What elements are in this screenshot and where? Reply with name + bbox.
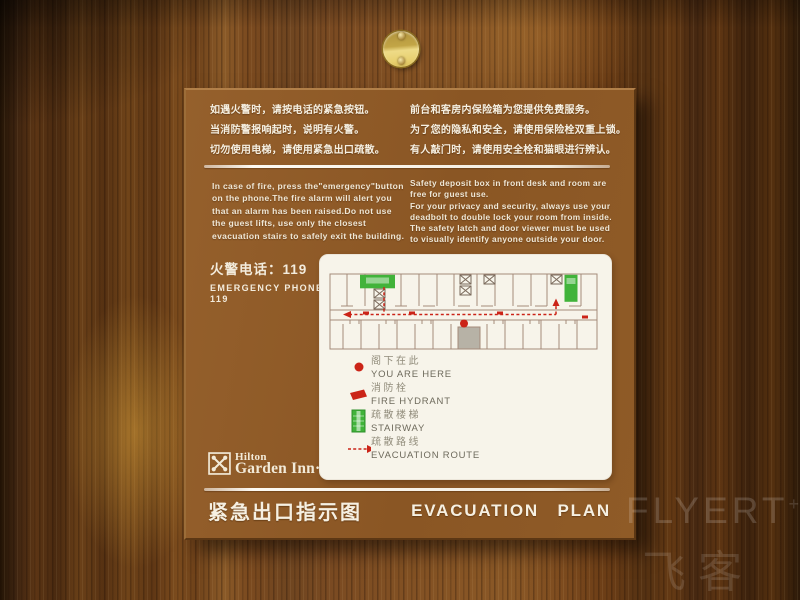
- notice-line: on the phone.The fire alarm will alert y…: [212, 192, 404, 204]
- notice-line: 前台和客房内保险箱为您提供免费服务。: [410, 101, 626, 121]
- logo-line2: Garden Inn·: [235, 462, 320, 476]
- legend-label-cn: 疏散路线: [371, 437, 480, 448]
- map-legend: 阁下在此 YOU ARE HERE 消防栓 FIRE HYDRANT: [347, 356, 480, 464]
- notice-line: free for guest use.: [410, 189, 612, 200]
- hotel-door-photo: 如遇火警时，请按电话的紧急按钮。 当消防警报响起时，说明有火警。 切勿使用电梯，…: [0, 0, 800, 600]
- legend-item-fire-hydrant: 消防栓 FIRE HYDRANT: [347, 383, 480, 405]
- legend-label-en: STAIRWAY: [371, 423, 425, 434]
- notice-line: 有人敲门时，请使用安全栓和猫眼进行辨认。: [410, 141, 626, 161]
- divider-line: [204, 488, 610, 491]
- you-are-here-dot: [460, 320, 468, 328]
- hgi-flower-icon: [208, 452, 231, 475]
- fire-notice-english: In case of fire, press the"emergency"but…: [212, 180, 404, 242]
- notice-line: The safety latch and door viewer must be…: [410, 223, 612, 234]
- sign-title-chinese: 紧急出口指示图: [208, 496, 362, 525]
- security-notice-english: Safety deposit box in front desk and roo…: [410, 178, 612, 246]
- evacuation-plan-sign: 如遇火警时，请按电话的紧急按钮。 当消防警报响起时，说明有火警。 切勿使用电梯，…: [184, 88, 636, 540]
- notice-line: Safety deposit box in front desk and roo…: [410, 178, 612, 189]
- stairway-left: [360, 275, 395, 289]
- legend-label-en: EVACUATION ROUTE: [371, 450, 480, 461]
- stairway-icon: [347, 410, 371, 432]
- notice-line: In case of fire, press the"emergency"but…: [212, 180, 404, 192]
- notice-line: deadbolt to double lock your room from i…: [410, 212, 612, 223]
- emergency-phone-cn: 火警电话：119: [210, 258, 323, 278]
- notice-line: the guest lifts, use only the closest: [212, 217, 404, 229]
- notice-line: 切勿使用电梯，请使用紧急出口疏散。: [210, 141, 385, 161]
- legend-label-cn: 阁下在此: [371, 356, 452, 367]
- emergency-phone-block: 火警电话：119 EMERGENCY PHONE 119: [210, 258, 323, 304]
- you-are-here-dot-icon: [347, 356, 371, 378]
- service-block: [458, 327, 480, 349]
- emergency-phone-number: 119: [210, 294, 323, 304]
- legend-item-evacuation-route: 疏散路线 EVACUATION ROUTE: [347, 437, 480, 459]
- emergency-phone-en: EMERGENCY PHONE: [210, 283, 323, 293]
- screw-icon: [398, 32, 405, 40]
- legend-label-cn: 消防栓: [371, 383, 451, 394]
- notice-line: 为了您的隐私和安全，请使用保险栓双重上锁。: [410, 121, 626, 141]
- hgi-logo-text: Hilton Garden Inn·: [235, 452, 320, 476]
- hilton-garden-inn-logo: Hilton Garden Inn·: [208, 452, 320, 476]
- notice-line: 如遇火警时，请按电话的紧急按钮。: [210, 101, 385, 121]
- fire-hydrant-icon: [347, 383, 371, 405]
- evacuation-route-path: [343, 287, 588, 319]
- evacuation-route-icon: [347, 437, 371, 459]
- floor-plan-panel: 阁下在此 YOU ARE HERE 消防栓 FIRE HYDRANT: [319, 254, 612, 480]
- stairway-right: [565, 275, 578, 302]
- sign-title-english: EVACUATION PLAN: [411, 501, 611, 521]
- notice-line: For your privacy and security, always us…: [410, 201, 612, 212]
- legend-label-en: FIRE HYDRANT: [371, 396, 451, 407]
- notice-line: evacuation stairs to safely exit the bui…: [212, 230, 404, 242]
- security-notice-chinese: 前台和客房内保险箱为您提供免费服务。 为了您的隐私和安全，请使用保险栓双重上锁。…: [410, 101, 626, 161]
- legend-label-en: YOU ARE HERE: [371, 369, 452, 380]
- screw-icon: [398, 57, 405, 65]
- notice-line: 当消防警报响起时，说明有火警。: [210, 121, 385, 141]
- door-viewer-icon: [383, 31, 419, 67]
- elevator-icons: [374, 275, 562, 309]
- legend-item-stairway: 疏散楼梯 STAIRWAY: [347, 410, 480, 432]
- legend-item-you-are-here: 阁下在此 YOU ARE HERE: [347, 356, 480, 378]
- notice-line: that an alarm has been raised.Do not use: [212, 205, 404, 217]
- legend-label-cn: 疏散楼梯: [371, 410, 425, 421]
- fire-notice-chinese: 如遇火警时，请按电话的紧急按钮。 当消防警报响起时，说明有火警。 切勿使用电梯，…: [210, 101, 385, 161]
- divider-line: [204, 165, 610, 168]
- notice-line: to visually identify anyone outside your…: [410, 234, 612, 245]
